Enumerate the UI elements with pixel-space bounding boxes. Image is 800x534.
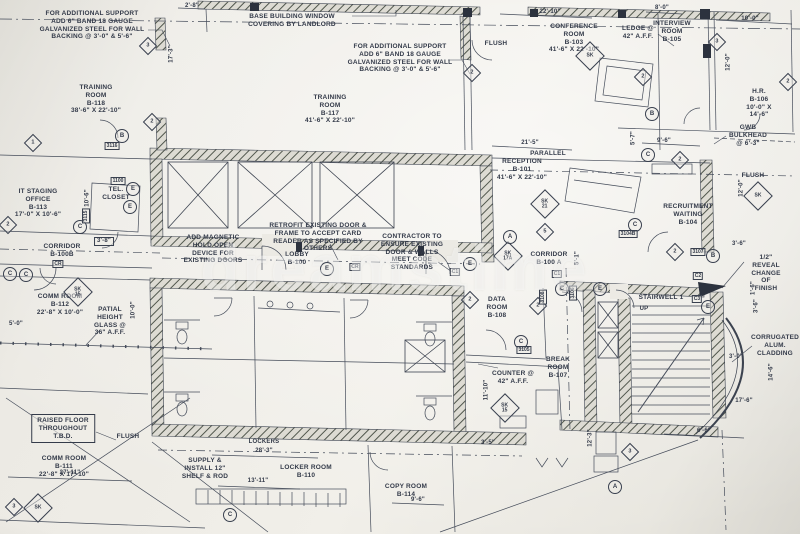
wall-type-tag: 1100	[111, 177, 126, 185]
wall-type-tag: CR	[349, 263, 360, 271]
detail-marker-diamond: 1	[24, 134, 42, 152]
label-up: UP	[640, 306, 649, 313]
note-additional-support-left: FOR ADDITIONAL SUPPORT ADD 6" BAND 18 GA…	[40, 10, 145, 41]
dim-8-0: 8'-0"	[655, 5, 669, 12]
note-additional-support-center: FOR ADDITIONAL SUPPORT ADD 6" BAND 18 GA…	[348, 43, 453, 74]
wall-type-tag: 3107	[690, 248, 705, 256]
dim-10-0-top: 10'-0"	[741, 16, 758, 23]
marker-text: 3	[146, 43, 149, 49]
dim-9-6-copy: 9'-6"	[411, 497, 425, 504]
dim-17-3: 17'-3"	[168, 45, 175, 62]
detail-marker-diamond: 2	[461, 291, 479, 309]
reference-marker-circle: E	[701, 300, 715, 314]
dim-3-0: 3'-0"	[729, 354, 743, 361]
marker-text: SK 21	[542, 199, 549, 209]
note-shelf-rod: SUPPLY & INSTALL 12" SHELF & ROD	[182, 457, 228, 480]
marker-text: 2	[6, 222, 9, 228]
dim-12-3: 12'-3"	[587, 429, 594, 446]
marker-text: 1	[31, 140, 34, 146]
dim-3-6-stair: 3'-6"	[753, 299, 760, 313]
marker-text: 3	[715, 39, 718, 45]
blueprint-photo: FOR ADDITIONAL SUPPORT ADD 6" BAND 18 GA…	[0, 0, 800, 534]
marker-text: 2	[468, 297, 471, 303]
marker-text: 3	[628, 449, 631, 455]
room-break: BREAK ROOM B-107	[546, 356, 570, 379]
reference-marker-circle: A	[608, 480, 622, 494]
reference-marker-circle: E	[463, 257, 477, 271]
reference-marker-circle: C	[641, 148, 655, 162]
detail-marker-diamond: 3	[5, 498, 23, 516]
reference-marker-circle: A	[503, 230, 517, 244]
dim-13-11: 13'-11"	[248, 478, 269, 485]
room-it-staging: IT STAGING OFFICE B-113 17'-0" X 10'-6"	[15, 188, 61, 219]
room-training-left: TRAINING ROOM B-118 38'-6" X 22'-10"	[71, 84, 121, 115]
room-interview: INTERVIEW ROOM B-105	[653, 20, 691, 43]
note-counter: COUNTER @ 42" A.F.F.	[492, 370, 534, 386]
dim-10-6: 10'-6"	[84, 189, 91, 206]
detail-marker-diamond: SK	[743, 181, 773, 211]
note-retrofit: RETROFIT EXISTING DOOR & FRAME TO ACCEPT…	[269, 222, 366, 253]
note-cladding: CORRUGATED ALUM. CLADDING	[751, 334, 799, 357]
dim-1-6: 1'-6"	[750, 281, 757, 295]
room-corridor-b100b: CORRIDOR B-100B	[44, 243, 81, 259]
reference-marker-circle: E	[123, 200, 137, 214]
room-training-center: TRAINING ROOM B-117 41'-6" X 22'-10"	[305, 94, 355, 125]
wall-type-tag: C3	[692, 295, 702, 303]
wall-type-tag: CR	[52, 260, 63, 268]
dim-17-6: 17'-6"	[735, 398, 752, 405]
dim-28-3: 28'-3"	[255, 448, 272, 455]
dim-2-8: 2'-8"	[185, 3, 199, 10]
detail-marker-diamond: 2	[779, 73, 797, 91]
dim-5-0: 5'-0"	[9, 321, 23, 328]
dim-9-6-recruitment: 9'-6"	[657, 138, 671, 145]
dim-10-0-glass: 10'-0"	[130, 301, 137, 318]
room-hr: H.R. B-106 10'-0" X 14'-6"	[739, 88, 780, 119]
room-stairwell: STAIRWELL 1	[639, 294, 684, 302]
wall-type-tag: 3104B	[619, 230, 638, 238]
detail-marker-diamond: SK 17A	[493, 241, 523, 271]
detail-marker-diamond: 2	[634, 68, 652, 86]
annotation-layer: FOR ADDITIONAL SUPPORT ADD 6" BAND 18 GA…	[0, 0, 800, 534]
detail-marker-diamond: SK	[23, 493, 53, 523]
detail-marker-diamond: SK 21	[530, 189, 560, 219]
detail-marker-diamond: 2	[671, 151, 689, 169]
detail-marker-diamond: 5	[536, 223, 554, 241]
dim-27-11: 27'-11"	[60, 470, 81, 477]
dim-5-7: 5'-7"	[630, 131, 637, 145]
marker-text: SK 15	[502, 403, 509, 413]
note-gwb-bulkhead: GWB BULKHEAD @ 6'-3"	[729, 124, 767, 147]
wall-type-tag: C1	[450, 268, 460, 276]
dim-11-10: 11'-10"	[483, 380, 490, 401]
dim-6-6: 6'-6"	[697, 428, 711, 435]
reference-marker-circle: B	[645, 107, 659, 121]
wall-type-tag: 3115	[82, 209, 90, 224]
room-lobby: LOBBY B-100	[285, 251, 309, 267]
marker-text: SK	[587, 53, 594, 58]
reference-marker-circle: C	[3, 267, 17, 281]
wall-type-tag: 3106	[569, 285, 577, 300]
dim-3-6-right: 3'-6"	[732, 241, 746, 248]
reference-marker-circle: C	[19, 268, 33, 282]
note-base-building-window: BASE BUILDING WINDOW COVERING BY LANDLOR…	[248, 13, 336, 29]
dim-22-10: 22'-10"	[539, 9, 560, 16]
wall-type-tag: 3116	[105, 142, 120, 150]
wall-type-tag: C1	[552, 270, 562, 278]
label-flush-conference: FLUSH	[485, 40, 508, 48]
detail-marker-diamond: 2	[463, 64, 481, 82]
detail-marker-diamond: SK 15	[490, 393, 520, 423]
dim-14-6: 14'-6"	[768, 363, 775, 380]
note-contractor: CONTRACTOR TO ENSURE EXISTING DOOR & WAL…	[381, 233, 443, 272]
detail-marker-diamond: 2	[143, 113, 161, 131]
detail-marker-diamond: 2	[666, 243, 684, 261]
room-locker: LOCKER ROOM B-110	[280, 464, 332, 480]
marker-text: SK	[35, 505, 42, 510]
reference-marker-circle: C	[555, 282, 569, 296]
marker-text: 2	[673, 249, 676, 255]
detail-marker-diamond: 3	[621, 443, 639, 461]
note-raised-floor: RAISED FLOOR THROUGHOUT T.B.D.	[31, 414, 95, 443]
marker-text: 2	[786, 79, 789, 85]
dim-3-8: 3'-8"	[94, 237, 114, 246]
note-partial-glass: PATIAL HEIGHT GLASS @ 36" A.F.F.	[94, 306, 126, 337]
marker-text: SK	[755, 193, 762, 198]
marker-text: 2	[678, 157, 681, 163]
reference-marker-circle: B	[706, 249, 720, 263]
marker-text: SK 17A	[503, 251, 512, 261]
dim-5-1: 5'-1"	[574, 251, 581, 265]
reference-marker-circle: E	[126, 182, 140, 196]
room-corridor-b100a: CORRIDOR B-100 A	[531, 251, 568, 267]
label-lockers: LOCKERS	[249, 439, 280, 446]
wall-type-tag: 3108	[539, 289, 547, 304]
reference-marker-circle: B	[115, 129, 129, 143]
marker-text: 3	[12, 504, 15, 510]
room-data: DATA ROOM B-108	[486, 296, 507, 319]
note-ledge: LEDGE @ 42" A.F.F.	[622, 25, 654, 41]
reference-marker-circle: E	[593, 282, 607, 296]
room-recruitment: RECRUITMENT WAITING B-104	[663, 203, 713, 226]
marker-text: 5	[543, 229, 546, 235]
reference-marker-circle: E	[320, 262, 334, 276]
wall-type-tag: C2	[693, 272, 703, 280]
reference-marker-circle: C	[223, 508, 237, 522]
detail-marker-diamond: 3	[708, 33, 726, 51]
note-parallel: PARALLEL	[530, 150, 566, 158]
dim-12-0-right: 12'-0"	[725, 53, 732, 70]
dim-3-5: 3'-5"	[481, 440, 495, 447]
note-add-magnetic: ADD MAGNETIC HOLD OPEN DEVICE FOR EXISTI…	[184, 234, 243, 265]
label-flush-bottom: FLUSH	[117, 433, 140, 441]
dim-21-5: 21'-5"	[521, 140, 538, 147]
marker-text: 2	[641, 74, 644, 80]
wall-type-tag: 3105	[516, 346, 531, 354]
marker-text: SK 15	[75, 287, 82, 297]
marker-text: 2	[150, 119, 153, 125]
marker-text: 2	[470, 70, 473, 76]
room-reception: RECEPTION B-101 41'-6" X 22'-10"	[497, 158, 547, 181]
